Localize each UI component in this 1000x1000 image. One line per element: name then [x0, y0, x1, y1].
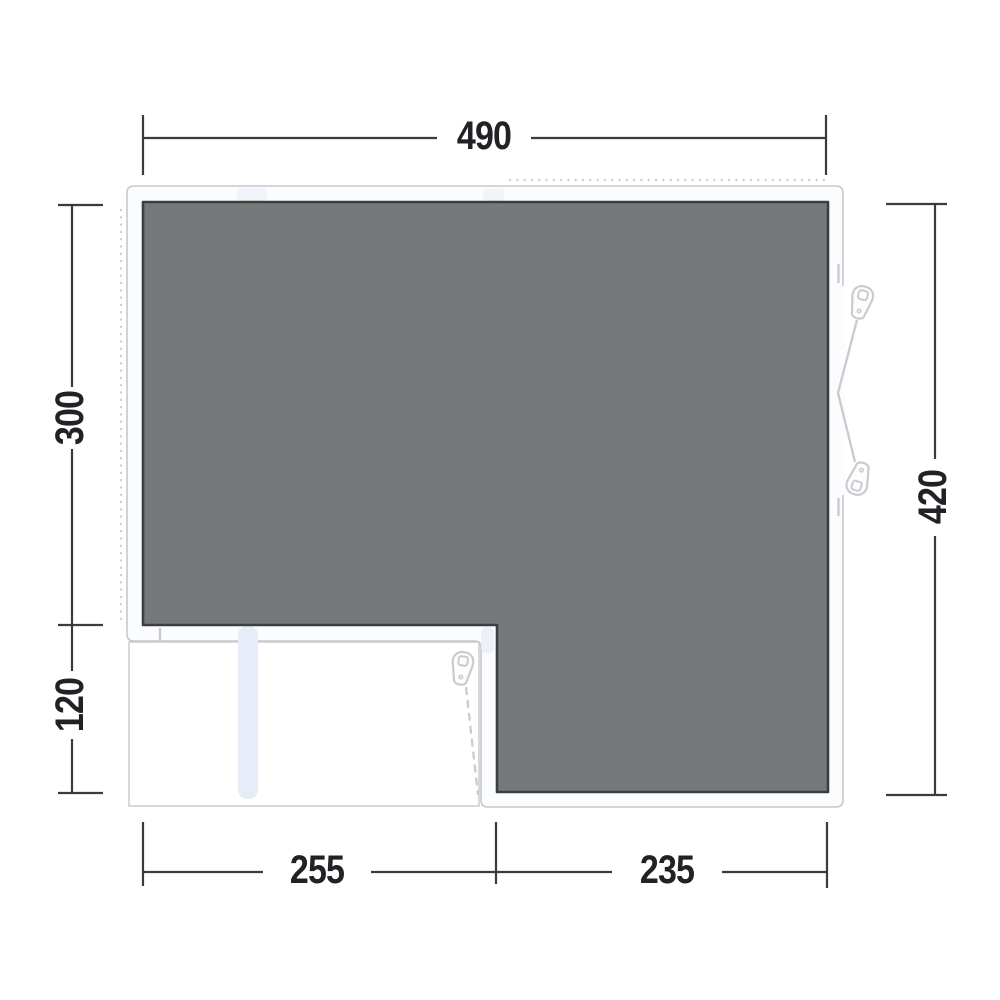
dimension-label-bottom-left-width: 255 [290, 850, 344, 890]
curtain-accent-step [481, 627, 494, 653]
rolled-divider-curtain [238, 626, 258, 799]
dimension-label-left-lower-height: 120 [50, 678, 90, 732]
dimension-label-left-upper-height: 300 [50, 391, 90, 445]
porch-area [129, 642, 479, 806]
curtain-accent-top-left [237, 188, 267, 201]
dimension-label-right-height: 420 [913, 470, 953, 524]
curtain-accent-top-mid [483, 189, 504, 201]
tent-floorplan-diagram: 490 300 120 420 255 235 [0, 0, 1000, 1000]
zipper-pull-icon [847, 284, 875, 321]
dimension-label-bottom-right-width: 235 [640, 850, 694, 890]
dimension-line-bottom [143, 822, 827, 888]
zipper-pull-icon [844, 460, 873, 497]
dimension-label-top-width: 490 [457, 116, 511, 156]
